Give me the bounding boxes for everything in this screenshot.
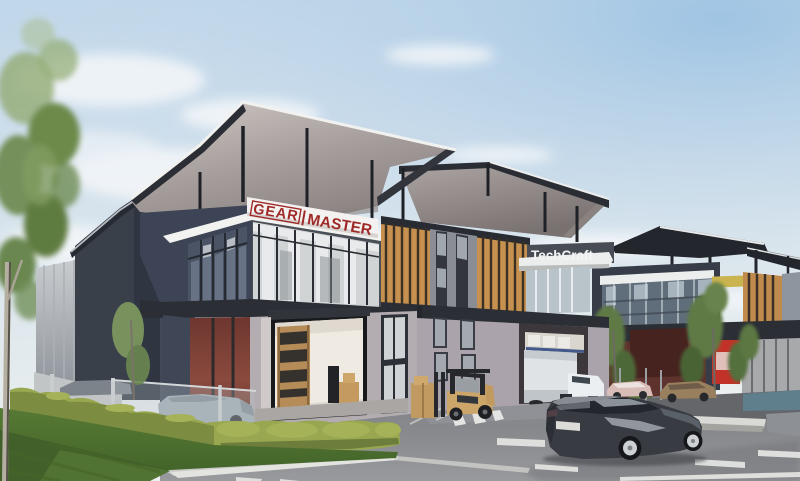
svg-text:TechCraft: TechCraft: [531, 248, 594, 263]
